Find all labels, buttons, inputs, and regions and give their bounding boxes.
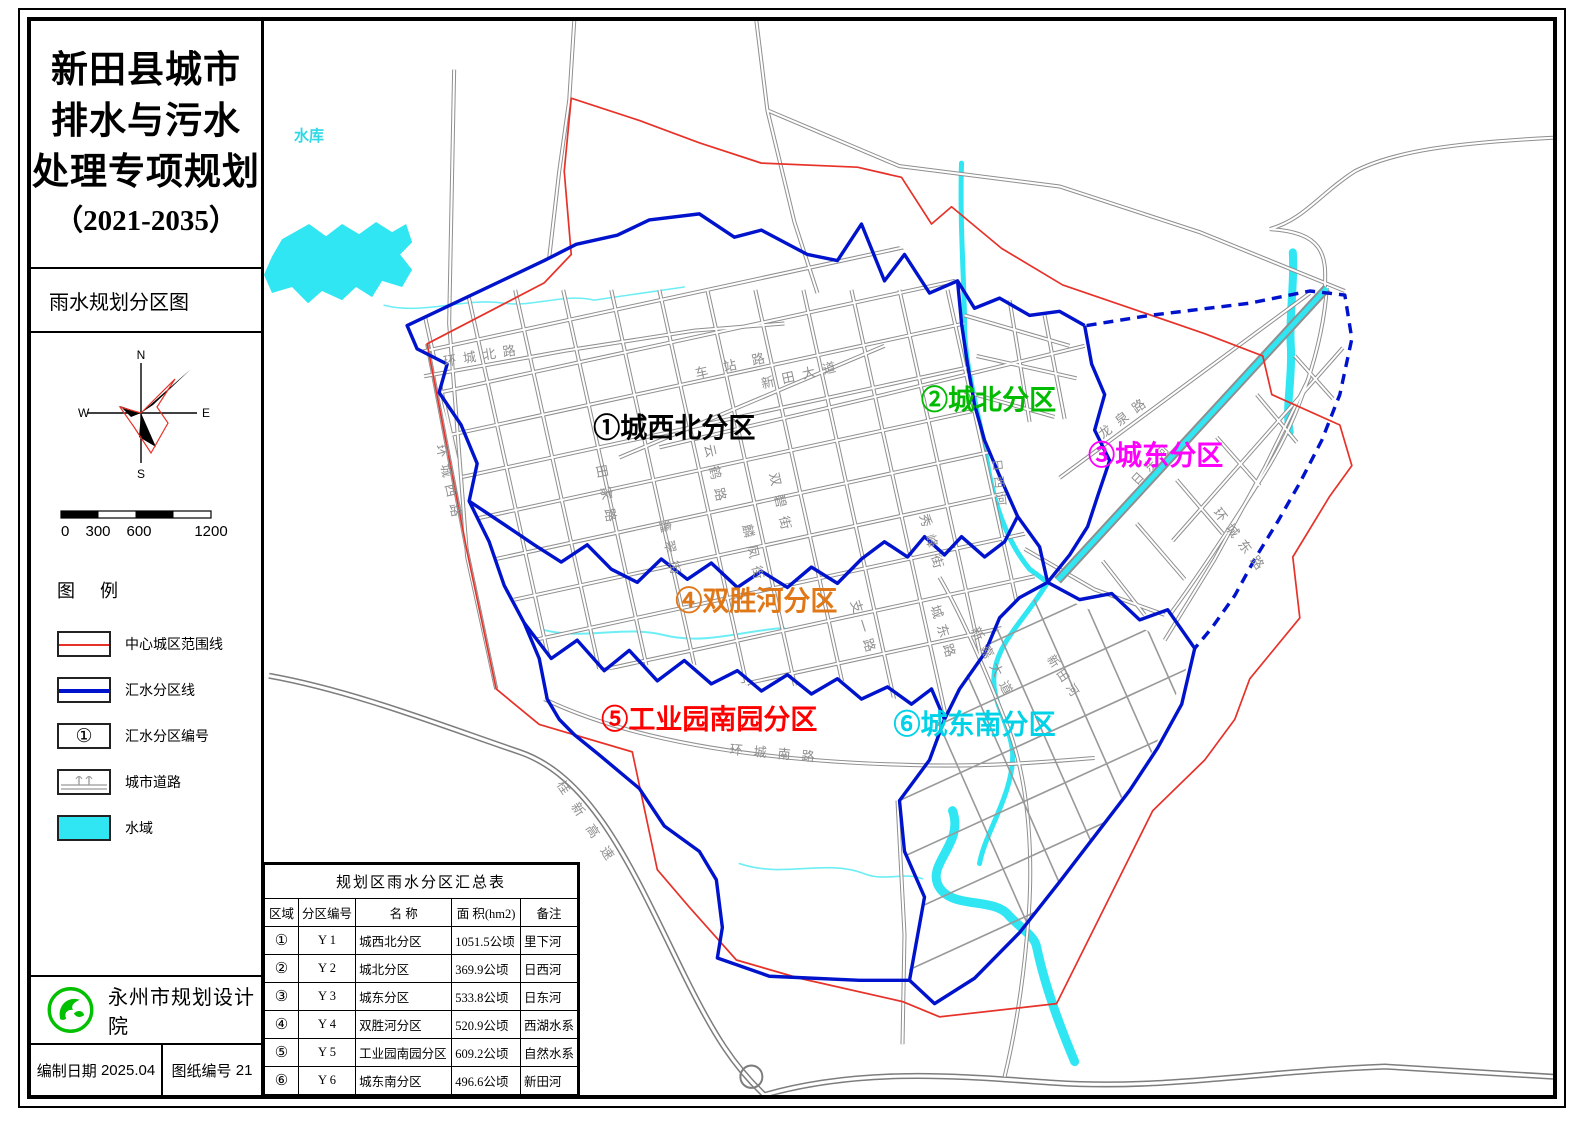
table-header-row: 区域 分区编号 名 称 面 积(hm2) 备注 (265, 899, 578, 927)
road-label-shuangbijie: 双碧街 (766, 471, 795, 540)
date-label: 编制日期 (37, 1060, 97, 1081)
table-row: ②Y 2城北分区369.9公顷日西河 (265, 955, 578, 983)
compass-rose: N W E S (71, 349, 221, 487)
compass-e: E (202, 406, 210, 420)
legend-symbol-road (57, 769, 111, 795)
map-sheet-name: 雨水规划分区图 (31, 269, 261, 333)
river-south-meander (936, 811, 1074, 1062)
scale-300: 300 (85, 523, 110, 540)
legend-label: 中心城区范围线 (125, 634, 223, 654)
date-value: 2025.04 (101, 1062, 155, 1079)
zone-label-6: ⑥城东南分区 (894, 708, 1056, 739)
compass-s: S (137, 467, 145, 481)
col-header-size: 面 积(hm2) (452, 899, 521, 927)
table-row: ③Y 3城东分区533.8公顷日东河 (265, 983, 578, 1011)
legend-symbol-circle-number: ① (57, 723, 111, 749)
road-label-guixingaosu: 桂新高速 (554, 777, 625, 874)
scale-1200: 1200 (194, 523, 227, 540)
legend-symbol-red-line (57, 631, 111, 657)
table-row: ④Y 4双胜河分区520.9公顷西湖水系 (265, 1011, 578, 1039)
reservoir-label: 水库 (294, 127, 324, 145)
scale-0: 0 (61, 523, 69, 540)
compass-n: N (137, 349, 146, 362)
stream-south (739, 864, 922, 879)
road-label-xincuijie: 鑫翠街 (656, 517, 686, 583)
publisher-block: 永州市规划设计院 (31, 977, 261, 1045)
left-panel: 新田县城市 排水与污水 处理专项规划 （2021-2035） 雨水规划分区图 N… (31, 21, 264, 1095)
drawing-sheet: 新田县城市 排水与污水 处理专项规划 （2021-2035） 雨水规划分区图 N… (18, 8, 1566, 1108)
zone-label-5: ⑤工业园南园分区 (601, 703, 817, 734)
summary-table-title: 规划区雨水分区汇总表 (265, 865, 578, 899)
sheet-number-label: 图纸编号 (172, 1060, 232, 1081)
date-cell: 编制日期 2025.04 (31, 1045, 161, 1095)
legend-header: 图 例 (57, 577, 128, 603)
title-line-2: 排水与污水 (51, 96, 241, 147)
road-label-xiufengjie: 秀峰街 (917, 512, 949, 578)
legend-symbol-water (57, 815, 111, 841)
legend-section: N W E S 0 300 600 1200 图 例 (31, 333, 261, 977)
summary-table: 规划区雨水分区汇总表 区域 分区编号 名 称 面 积(hm2) 备注 ①Y 1城… (264, 862, 580, 1095)
table-row: ①Y 1城西北分区1051.5公顷里下河 (265, 927, 578, 955)
river-label-xintianhe: 新田河 (1044, 652, 1085, 703)
col-header-name: 名 称 (356, 899, 452, 927)
reservoir-lake (264, 222, 412, 303)
legend-item-catchment: 汇水分区线 (57, 667, 223, 713)
title-line-1: 新田县城市 (51, 45, 241, 96)
legend-symbol-blue-line (57, 677, 111, 703)
table-row: ⑥Y 6城东南分区496.6公顷新田河 (265, 1067, 578, 1095)
title-line-3: 处理专项规划 (32, 147, 260, 198)
plan-title: 新田县城市 排水与污水 处理专项规划 （2021-2035） (31, 21, 261, 269)
zone-label-2: ②城北分区 (921, 384, 1056, 415)
legend-label: 水域 (125, 818, 153, 838)
legend-label: 城市道路 (125, 772, 181, 792)
col-header-code: 分区编号 (298, 899, 355, 927)
publisher-name: 永州市规划设计院 (108, 981, 261, 1039)
compass-needle-ne (141, 369, 191, 413)
river-label-rixihe: 日西河 (990, 458, 1009, 511)
legend-label: 汇水分区编号 (125, 726, 209, 746)
legend-item-water: 水域 (57, 805, 223, 851)
col-header-note: 备注 (520, 899, 577, 927)
legend-list: 中心城区范围线 汇水分区线 ① 汇水分区编号 (57, 621, 223, 851)
inner-frame: 新田县城市 排水与污水 处理专项规划 （2021-2035） 雨水规划分区图 N… (27, 17, 1557, 1099)
scale-600: 600 (126, 523, 151, 540)
table-row: ⑤Y 5工业园南园分区609.2公顷自然水系 (265, 1039, 578, 1067)
road-label-huanchengnanlu: 环城南路 (729, 742, 826, 766)
legend-label: 汇水分区线 (125, 680, 195, 700)
zone-label-3: ③城东分区 (1088, 439, 1223, 470)
zone-label-1: ①城西北分区 (593, 412, 755, 443)
sheet-number-cell: 图纸编号 21 (161, 1045, 261, 1095)
legend-item-zone-number: ① 汇水分区编号 (57, 713, 223, 759)
legend-item-road: 城市道路 (57, 759, 223, 805)
legend-item-boundary: 中心城区范围线 (57, 621, 223, 667)
title-block-footer: 编制日期 2025.04 图纸编号 21 (31, 1045, 261, 1095)
compass-w: W (78, 406, 90, 420)
zone-label-4: ④双胜河分区 (675, 585, 837, 616)
publisher-logo (45, 982, 96, 1038)
road-label-tianjialu: 田家路 (593, 463, 621, 532)
map-area: 环城北路 环城西路 车站路 新田大道 田家路 云鹤路 双碧街 鑫翠街 麟凤街 秀… (264, 21, 1553, 1095)
zone-labels: ①城西北分区 ②城北分区 ③城东分区 ④双胜河分区 ⑤工业园南园分区 ⑥城东南分… (294, 127, 1223, 740)
title-years: （2021-2035） (54, 198, 238, 244)
col-header-area: 区域 (265, 899, 299, 927)
scale-bar: 0 300 600 1200 (51, 509, 241, 543)
road-label-linfengjie: 麟凤街 (739, 523, 768, 589)
sheet-number-value: 21 (236, 1062, 253, 1079)
